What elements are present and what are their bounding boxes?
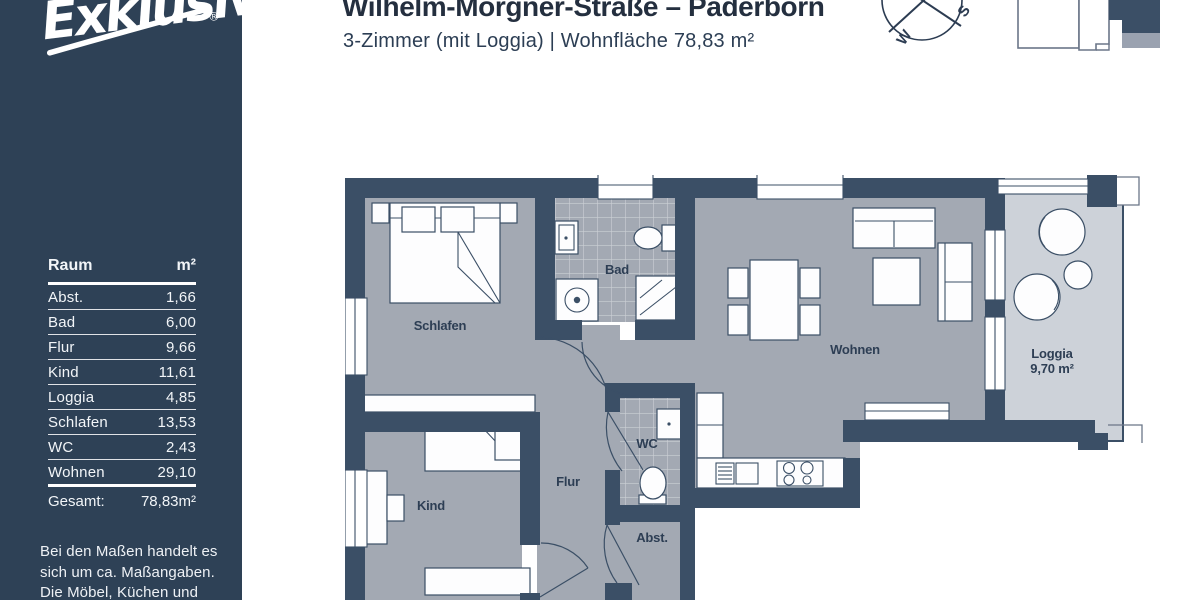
wc-toilet: [639, 467, 666, 504]
disclaimer-line: sich um ca. Maßangaben.: [40, 563, 230, 584]
wall-neighbor-block: [1087, 175, 1117, 207]
disclaimer-text: Bei den Maßen handelt es sich um ca. Maß…: [40, 542, 230, 600]
wall-kitchen-bottom: [680, 488, 860, 508]
table-total-row: Gesamt: 78,83m²: [48, 487, 196, 512]
row-area: 29,10: [157, 464, 196, 481]
label-kind: Kind: [417, 498, 445, 513]
round-table: [1064, 261, 1092, 289]
wall-schlafen-right: [535, 198, 555, 335]
table-row: WC 2,43: [48, 435, 196, 460]
floor-plan: Schlafen Bad Wohnen Loggia 9,70 m² Kind …: [345, 175, 1145, 600]
flur-passage: [540, 340, 698, 385]
loggia-railing: [998, 179, 1088, 194]
window-loggia-door: [985, 230, 1005, 300]
siteplan-unit-outline: [1079, 0, 1109, 50]
row-room: Schlafen: [48, 414, 108, 431]
window-wohnen-bottom: [865, 403, 949, 420]
wall-wohnen-bottom: [843, 420, 1095, 442]
total-label: Gesamt:: [48, 493, 105, 510]
page-subtitle: 3-Zimmer (mit Loggia) | Wohnfläche 78,83…: [343, 30, 754, 53]
site-plan-thumbnail: [1010, 0, 1170, 58]
table-row: Flur 9,66: [48, 335, 196, 360]
row-room: Loggia: [48, 389, 94, 406]
row-area: 11,61: [159, 364, 196, 381]
compass-icon: S W: [865, 0, 980, 62]
siteplan-loggia-part: [1122, 33, 1160, 48]
row-room: Kind: [48, 364, 79, 381]
row-room: Wohnen: [48, 464, 105, 481]
col-area: m²: [176, 257, 196, 275]
row-area: 1,66: [166, 289, 196, 306]
compass-west-label: W: [893, 26, 916, 48]
table-row: Kind 11,61: [48, 360, 196, 385]
label-wohnen: Wohnen: [830, 342, 880, 357]
window-schlafen-left: [345, 298, 367, 375]
wall-wc-left: [605, 398, 620, 412]
label-loggia: Loggia: [1031, 346, 1073, 361]
coffee-table: [873, 258, 920, 305]
wall-bad-right: [675, 178, 695, 340]
label-flur: Flur: [556, 474, 580, 489]
wc-sink: [657, 409, 681, 439]
wall-top: [345, 178, 995, 198]
label-bad: Bad: [605, 262, 629, 277]
siteplan-step-outline: [1096, 44, 1109, 50]
sidebar: Exklusiv ® Raum m² Abst. 1,66 Bad 6,00 F…: [0, 0, 242, 600]
neighbor-outline: [1117, 177, 1139, 205]
row-area: 9,66: [166, 339, 196, 356]
table-row: Loggia 4,85: [48, 385, 196, 410]
row-room: Flur: [48, 339, 75, 356]
wall-loggia-step: [1078, 433, 1108, 450]
label-loggia-area: 9,70 m²: [1030, 361, 1074, 376]
wardrobe: [425, 568, 530, 595]
washing-machine: [556, 279, 598, 321]
siteplan-unit-outline: [1018, 0, 1079, 48]
window-wohnen-top: [757, 175, 843, 199]
row-area: 2,43: [166, 439, 196, 456]
toilet: [634, 225, 676, 251]
table-row: Bad 6,00: [48, 310, 196, 335]
row-room: Bad: [48, 314, 75, 331]
brand-logo-registered: ®: [209, 9, 220, 24]
label-schlafen: Schlafen: [414, 318, 467, 333]
bathroom-sink: [555, 221, 578, 254]
shower: [636, 276, 680, 320]
table-header: Raum m²: [48, 255, 196, 285]
window-loggia: [985, 317, 1005, 390]
compass-circle: [882, 0, 962, 40]
compass-needle: [883, 0, 961, 26]
wall-kitchen-step: [843, 458, 860, 508]
row-room: WC: [48, 439, 73, 456]
sofa: [853, 208, 935, 248]
table-row: Abst. 1,66: [48, 285, 196, 310]
window-kind-left: [345, 470, 367, 547]
table-row: Wohnen 29,10: [48, 460, 196, 487]
wall-schlafen-bottom: [345, 412, 540, 432]
row-area: 13,53: [157, 414, 196, 431]
wall-abst-left-stub: [605, 583, 632, 600]
label-abst: Abst.: [636, 530, 668, 545]
wall-wc-left: [605, 470, 620, 525]
floorplan-page: Exklusiv ® Raum m² Abst. 1,66 Bad 6,00 F…: [0, 0, 1200, 600]
row-room: Abst.: [48, 289, 83, 306]
brand-logo-art: Exklusiv ®: [0, 0, 242, 84]
disclaimer-line: Die Möbel, Küchen und: [40, 583, 230, 600]
disclaimer-line: Bei den Maßen handelt es: [40, 542, 230, 563]
window-bad: [598, 175, 653, 199]
row-area: 4,85: [166, 389, 196, 406]
label-wc: WC: [636, 436, 658, 451]
col-room: Raum: [48, 257, 92, 275]
sideboard: [363, 395, 535, 412]
siteplan-unit-highlight: [1109, 0, 1160, 33]
page-title: Wilhelm-Morgner-Straße – Paderborn: [342, 0, 824, 23]
wall-kind-right-stub: [520, 593, 540, 600]
armchair: [938, 243, 972, 321]
table-row: Schlafen 13,53: [48, 410, 196, 435]
brand-logo: Exklusiv ®: [0, 0, 242, 84]
wall-kind-right: [520, 430, 540, 545]
double-bed: [372, 203, 517, 303]
total-value: 78,83m²: [141, 493, 196, 510]
room-area-table: Raum m² Abst. 1,66 Bad 6,00 Flur 9,66 Ki…: [48, 255, 196, 512]
row-area: 6,00: [166, 314, 196, 331]
